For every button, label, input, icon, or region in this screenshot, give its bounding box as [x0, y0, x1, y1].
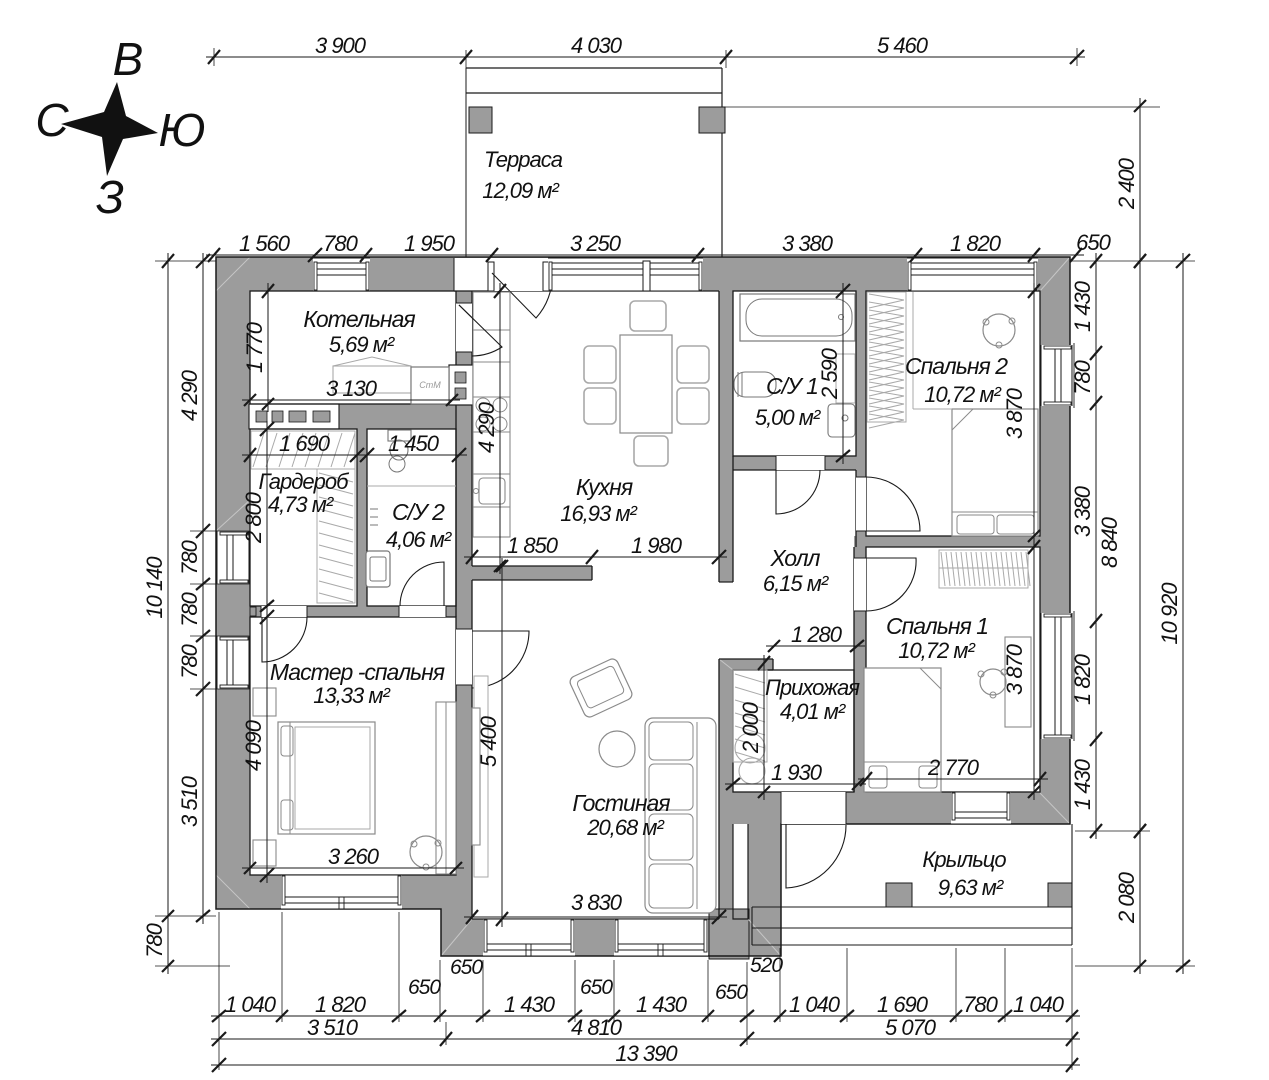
svg-text:1 820: 1 820	[950, 231, 1002, 256]
svg-text:1 040: 1 040	[789, 992, 841, 1017]
svg-text:1 690: 1 690	[279, 431, 331, 456]
svg-text:780: 780	[177, 591, 202, 626]
svg-text:2 400: 2 400	[1114, 157, 1139, 210]
svg-text:1 430: 1 430	[636, 992, 688, 1017]
svg-text:650: 650	[450, 956, 483, 979]
svg-text:Спальня 2: Спальня 2	[905, 353, 1008, 379]
svg-text:В: В	[113, 33, 144, 85]
svg-text:Кухня: Кухня	[576, 474, 633, 500]
svg-text:СтМ: СтМ	[419, 380, 441, 390]
svg-text:5 400: 5 400	[476, 715, 501, 767]
svg-text:1 850: 1 850	[507, 533, 559, 558]
svg-text:1 690: 1 690	[877, 992, 929, 1017]
svg-text:4,73 м²: 4,73 м²	[268, 492, 334, 517]
svg-text:3 260: 3 260	[328, 844, 380, 869]
svg-text:1 040: 1 040	[225, 992, 277, 1017]
svg-text:3 380: 3 380	[782, 231, 834, 256]
svg-text:2 590: 2 590	[817, 347, 842, 400]
svg-text:780: 780	[963, 992, 998, 1017]
svg-text:Котельная: Котельная	[303, 306, 415, 332]
svg-text:2 080: 2 080	[1114, 871, 1139, 924]
svg-text:1 430: 1 430	[1070, 758, 1095, 810]
svg-text:16,93 м²: 16,93 м²	[560, 501, 637, 526]
svg-text:Терраса: Терраса	[484, 147, 563, 172]
svg-text:5 070: 5 070	[885, 1015, 937, 1040]
svg-text:6,15 м²: 6,15 м²	[763, 571, 829, 596]
svg-text:4 090: 4 090	[241, 719, 266, 771]
svg-text:10,72 м²: 10,72 м²	[898, 638, 975, 663]
svg-text:5,69 м²: 5,69 м²	[329, 332, 395, 357]
svg-text:9,63 м²: 9,63 м²	[938, 875, 1004, 900]
svg-text:1 430: 1 430	[504, 992, 556, 1017]
svg-text:4 030: 4 030	[571, 33, 623, 58]
svg-text:13,33 м²: 13,33 м²	[313, 683, 390, 708]
svg-text:С/У 2: С/У 2	[392, 499, 445, 525]
svg-text:Крыльцо: Крыльцо	[922, 847, 1006, 872]
svg-text:С: С	[35, 94, 69, 146]
svg-text:2 770: 2 770	[927, 755, 980, 780]
svg-text:1 450: 1 450	[388, 431, 440, 456]
svg-text:780: 780	[177, 539, 202, 574]
svg-text:3 380: 3 380	[1070, 485, 1095, 537]
svg-text:З: З	[96, 171, 124, 223]
svg-text:3 130: 3 130	[326, 376, 378, 401]
svg-text:Спальня 1: Спальня 1	[886, 613, 988, 639]
svg-text:10 920: 10 920	[1157, 582, 1182, 645]
svg-text:2 800: 2 800	[241, 491, 266, 544]
svg-text:3 510: 3 510	[177, 775, 202, 827]
svg-text:Ю: Ю	[158, 104, 205, 156]
svg-text:3 510: 3 510	[307, 1015, 359, 1040]
svg-text:Холл: Холл	[769, 545, 820, 571]
svg-text:10 140: 10 140	[142, 556, 167, 619]
svg-text:1 040: 1 040	[1013, 992, 1065, 1017]
svg-text:650: 650	[580, 976, 613, 999]
svg-text:12,09 м²: 12,09 м²	[482, 178, 559, 203]
svg-text:1 560: 1 560	[239, 231, 291, 256]
svg-text:4 290: 4 290	[177, 369, 202, 421]
svg-text:650: 650	[1076, 230, 1111, 255]
svg-text:10,72 м²: 10,72 м²	[924, 382, 1001, 407]
svg-text:4,06 м²: 4,06 м²	[386, 527, 452, 552]
svg-text:3 250: 3 250	[570, 231, 622, 256]
svg-text:С/У 1: С/У 1	[766, 373, 818, 399]
svg-text:5 460: 5 460	[877, 33, 929, 58]
svg-text:13 390: 13 390	[615, 1041, 678, 1066]
svg-text:1 430: 1 430	[1070, 280, 1095, 332]
svg-text:5,00 м²: 5,00 м²	[755, 405, 821, 430]
svg-text:1 980: 1 980	[631, 533, 683, 558]
svg-text:2 000: 2 000	[738, 701, 763, 754]
svg-text:8 840: 8 840	[1097, 516, 1122, 568]
svg-text:520: 520	[750, 954, 783, 977]
svg-text:4 810: 4 810	[571, 1015, 623, 1040]
svg-text:1 950: 1 950	[404, 231, 456, 256]
svg-text:20,68 м²: 20,68 м²	[586, 815, 664, 840]
svg-text:1 770: 1 770	[242, 321, 267, 373]
svg-text:Мастер -спальня: Мастер -спальня	[270, 659, 445, 685]
svg-text:780: 780	[323, 231, 358, 256]
svg-text:1 930: 1 930	[771, 760, 823, 785]
svg-text:650: 650	[408, 976, 441, 999]
svg-text:4,01 м²: 4,01 м²	[780, 699, 846, 724]
svg-text:1 820: 1 820	[315, 992, 367, 1017]
svg-text:3 870: 3 870	[1002, 643, 1027, 695]
svg-text:Гостиная: Гостиная	[572, 790, 670, 816]
svg-text:780: 780	[177, 643, 202, 678]
svg-text:Гардероб: Гардероб	[259, 469, 351, 494]
svg-text:Прихожая: Прихожая	[765, 675, 860, 700]
svg-text:1 820: 1 820	[1070, 653, 1095, 705]
svg-text:3 830: 3 830	[571, 890, 623, 915]
svg-text:1 280: 1 280	[791, 622, 843, 647]
svg-text:3 870: 3 870	[1002, 387, 1027, 439]
svg-text:650: 650	[715, 981, 748, 1004]
svg-text:3 900: 3 900	[315, 33, 367, 58]
svg-text:780: 780	[1070, 359, 1095, 394]
svg-text:780: 780	[142, 922, 167, 957]
svg-text:4 290: 4 290	[474, 401, 499, 453]
